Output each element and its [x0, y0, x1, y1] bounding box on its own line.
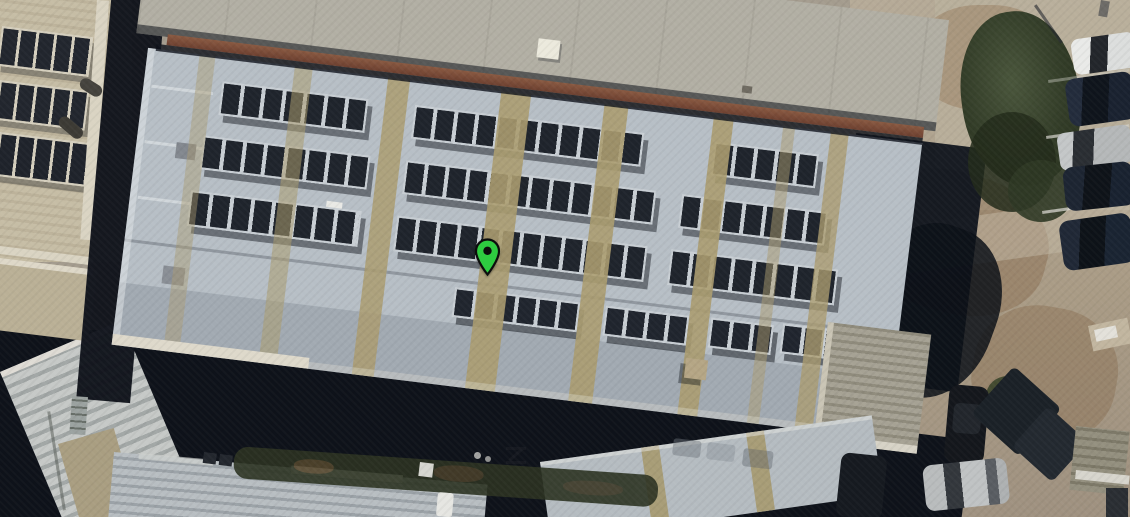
satellite-imagery-base[interactable] — [0, 0, 1130, 517]
satellite-map-viewport[interactable] — [0, 0, 1130, 517]
location-pin[interactable] — [474, 238, 501, 276]
